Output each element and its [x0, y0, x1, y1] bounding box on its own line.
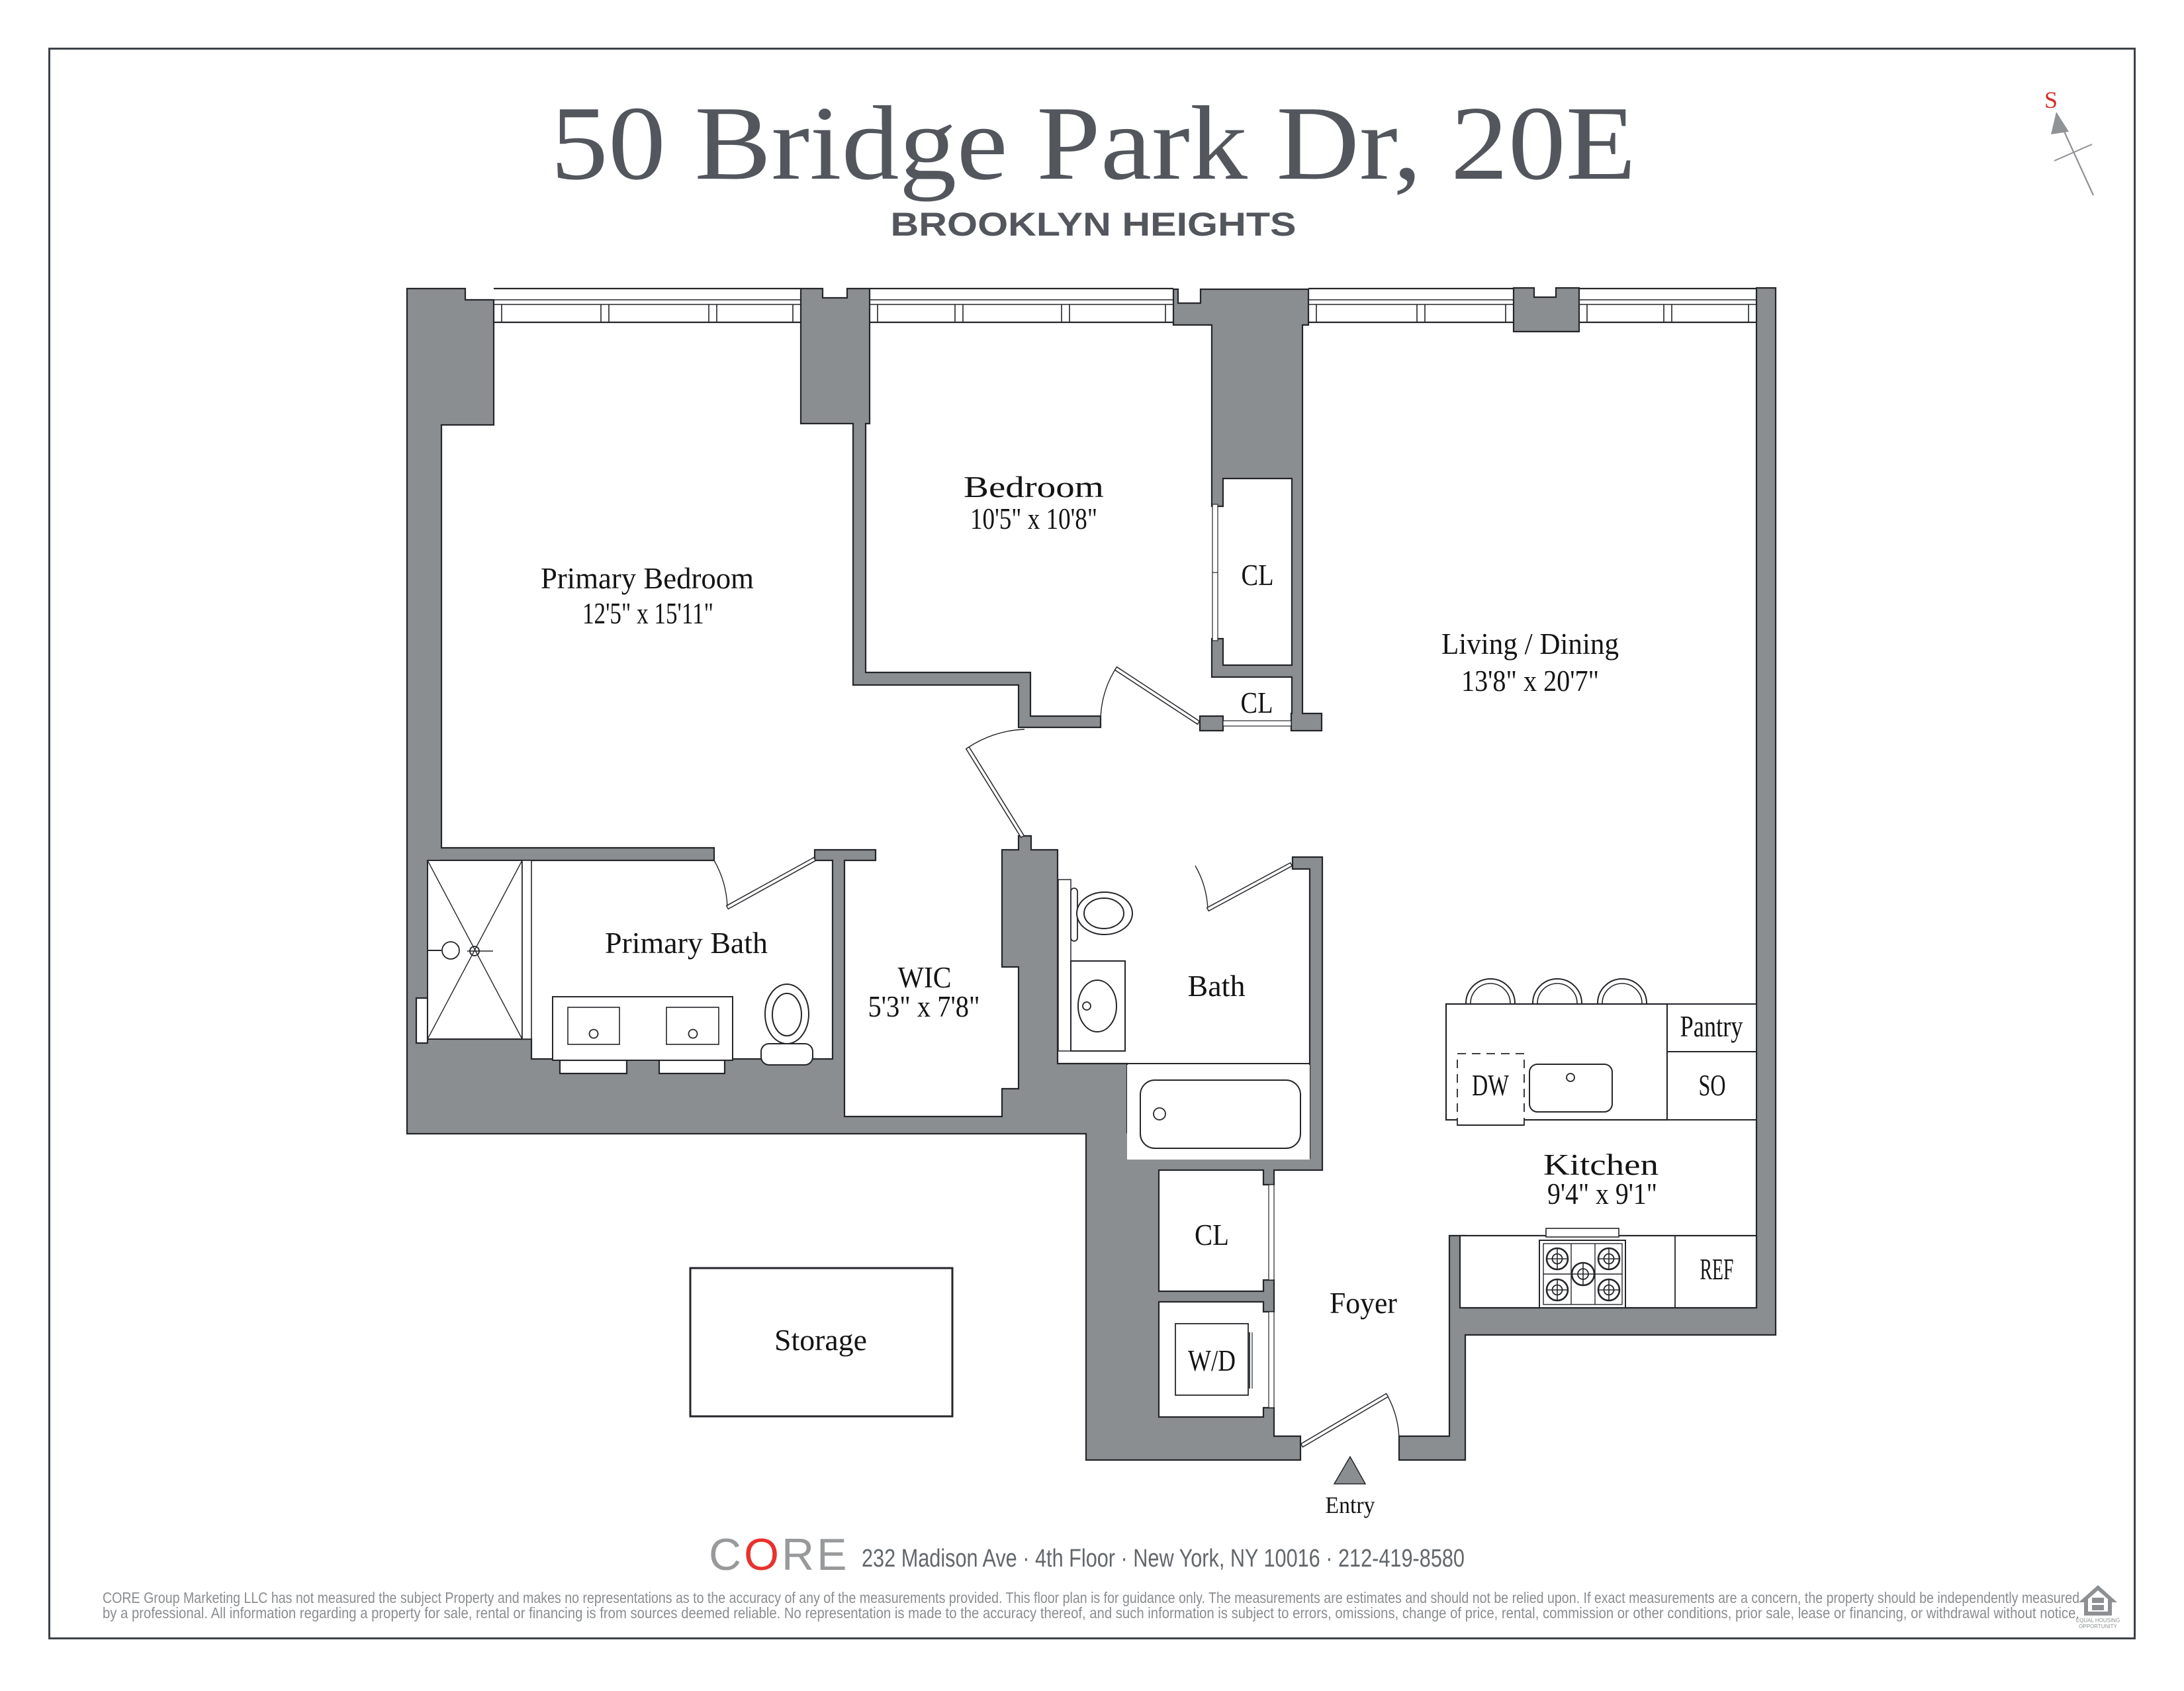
- svg-text:232 Madison Ave · 4th Floor ·: 232 Madison Ave · 4th Floor · New York, …: [862, 1545, 1465, 1573]
- svg-text:Primary Bedroom: Primary Bedroom: [541, 562, 754, 595]
- svg-text:50 Bridge Park Dr, 20E: 50 Bridge Park Dr, 20E: [551, 84, 1636, 202]
- svg-text:Living / Dining: Living / Dining: [1441, 627, 1619, 661]
- svg-text:Primary Bath: Primary Bath: [605, 927, 768, 960]
- svg-text:CL: CL: [1241, 686, 1273, 719]
- svg-text:Storage: Storage: [774, 1324, 867, 1357]
- svg-text:CL: CL: [1242, 559, 1274, 592]
- svg-text:CORE: CORE: [709, 1530, 849, 1580]
- svg-text:BROOKLYN HEIGHTS: BROOKLYN HEIGHTS: [891, 206, 1297, 243]
- svg-text:CL: CL: [1195, 1218, 1229, 1252]
- svg-text:10'5" x 10'8": 10'5" x 10'8": [970, 502, 1097, 535]
- svg-text:by a professional. All informa: by a professional. All information regar…: [103, 1604, 2079, 1622]
- svg-text:Pantry: Pantry: [1680, 1010, 1743, 1043]
- svg-text:OPPORTUNITY: OPPORTUNITY: [2079, 1623, 2117, 1629]
- svg-text:Kitchen: Kitchen: [1543, 1148, 1659, 1181]
- svg-text:S: S: [2044, 87, 2058, 113]
- svg-text:SO: SO: [1699, 1069, 1726, 1102]
- svg-text:9'4" x 9'1": 9'4" x 9'1": [1547, 1177, 1657, 1211]
- svg-text:Entry: Entry: [1326, 1492, 1375, 1518]
- svg-text:WIC: WIC: [898, 961, 952, 994]
- svg-text:13'8" x 20'7": 13'8" x 20'7": [1461, 664, 1599, 698]
- svg-text:Bedroom: Bedroom: [964, 471, 1104, 504]
- svg-text:REF: REF: [1700, 1253, 1734, 1286]
- svg-text:Foyer: Foyer: [1330, 1287, 1397, 1320]
- svg-text:EQUAL HOUSING: EQUAL HOUSING: [2076, 1618, 2120, 1623]
- svg-text:DW: DW: [1472, 1069, 1509, 1102]
- svg-text:Bath: Bath: [1188, 970, 1246, 1003]
- svg-text:5'3" x 7'8": 5'3" x 7'8": [868, 990, 980, 1023]
- svg-text:W/D: W/D: [1188, 1344, 1236, 1377]
- svg-text:12'5" x 15'11": 12'5" x 15'11": [582, 597, 713, 630]
